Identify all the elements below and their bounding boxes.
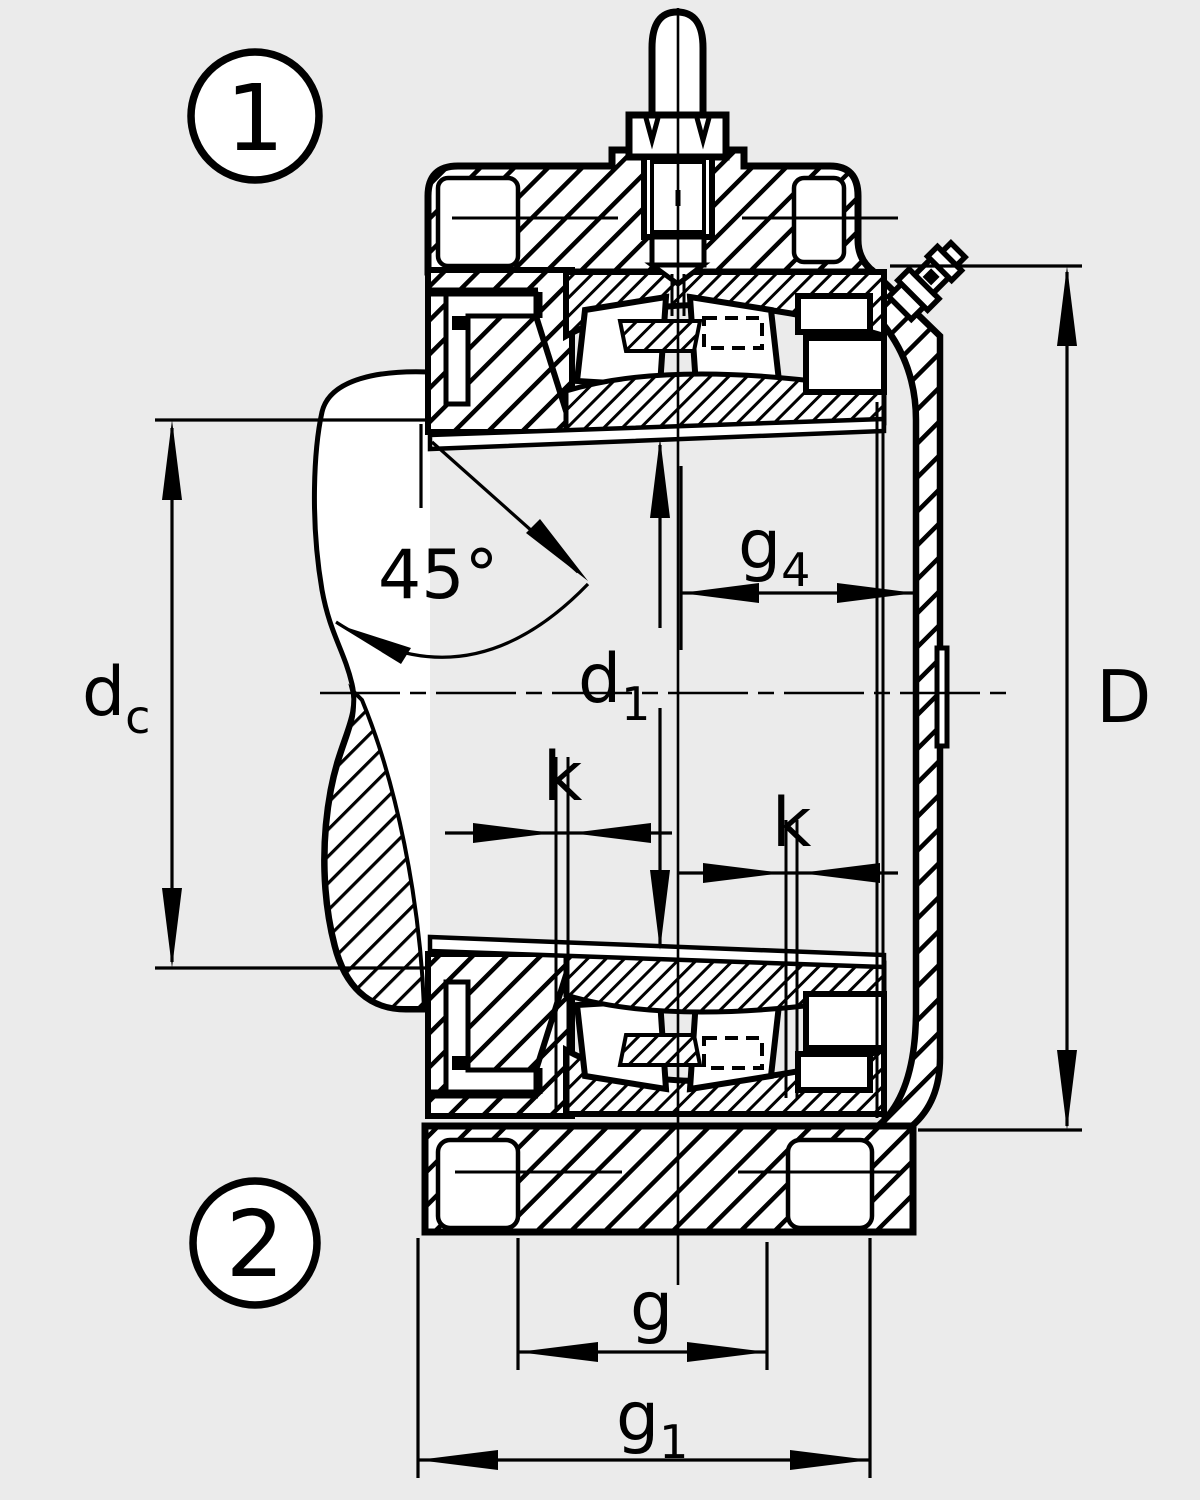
label-k-right: k xyxy=(772,784,812,863)
label-k-left: k xyxy=(543,738,583,817)
bearing-housing-drawing: dc 45° d1 g4 k k D g g1 1 2 xyxy=(0,0,1200,1500)
cap-bolt-pocket-right xyxy=(794,178,844,262)
callout-1: 1 xyxy=(191,52,319,180)
locating-ring-lower-a xyxy=(798,1054,870,1090)
locating-ring-lower-b xyxy=(806,994,884,1048)
callout-2-number: 2 xyxy=(226,1191,285,1298)
label-angle: 45° xyxy=(378,536,499,615)
wall-locating-plate xyxy=(937,648,947,746)
cage-lower xyxy=(620,1035,700,1065)
callout-1-number: 1 xyxy=(226,65,285,172)
base-bolt-pocket-right xyxy=(788,1140,872,1228)
seal-carrier-upper xyxy=(428,270,572,432)
locating-ring-upper-a xyxy=(798,296,870,332)
cage-upper xyxy=(620,321,700,351)
drawing-canvas: dc 45° d1 g4 k k D g g1 1 2 xyxy=(0,0,1200,1500)
label-g: g xyxy=(630,1268,673,1347)
cap-bolt-pocket-left xyxy=(438,178,518,266)
base-bolt-pocket-left xyxy=(438,1140,518,1228)
callout-2: 2 xyxy=(193,1181,317,1305)
locating-ring-upper-b xyxy=(806,338,884,392)
seal-carrier-lower xyxy=(428,954,572,1116)
label-D: D xyxy=(1096,655,1151,739)
